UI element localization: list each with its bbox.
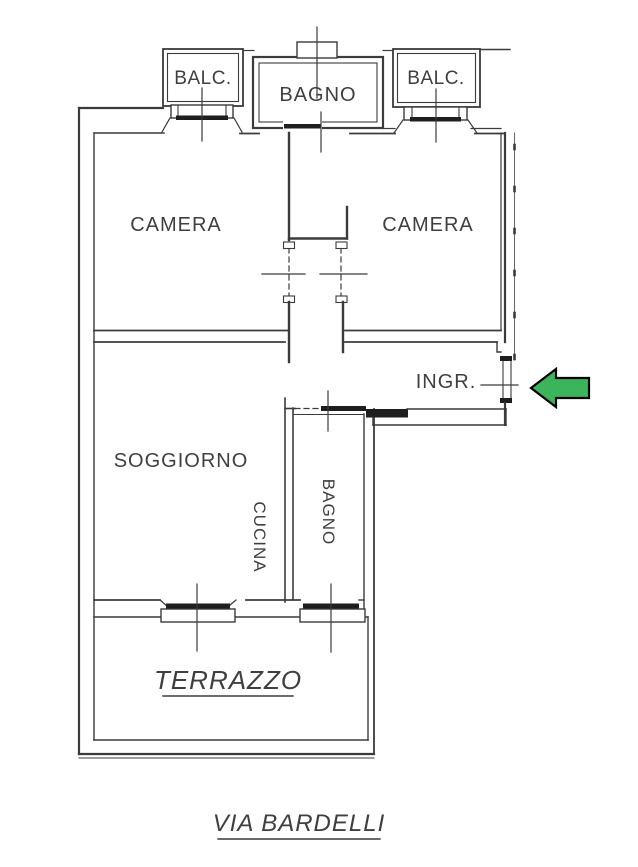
wall-fill	[366, 409, 408, 418]
label-entrance: INGR.	[416, 371, 477, 393]
floor-plan: BALC. BAGNO BALC. CAMERA CAMERA INGR. SO…	[0, 0, 638, 867]
window-frame	[161, 609, 235, 622]
window-frame	[300, 609, 365, 622]
label-balcony-left: BALC.	[174, 68, 231, 89]
label-balcony-right: BALC.	[407, 68, 464, 89]
door-sill	[284, 124, 321, 129]
french-window-right	[350, 89, 505, 142]
label-bedroom-left: CAMERA	[130, 214, 222, 236]
label-bedroom-right: CAMERA	[382, 214, 474, 236]
bedroom-walls	[94, 331, 501, 353]
central-partition	[262, 133, 367, 362]
door-jamb	[336, 296, 347, 303]
street-name: VIA BARDELLI	[213, 810, 386, 837]
hall-walls	[285, 391, 506, 431]
door-frame	[503, 361, 511, 398]
label-bathroom-top: BAGNO	[279, 84, 356, 106]
label-bathroom-lower: BAGNO	[319, 479, 338, 545]
french-window-left	[162, 88, 259, 141]
label-terrace: TERRAZZO	[154, 665, 302, 695]
terrace-window-bath	[300, 584, 365, 652]
entrance-door	[481, 356, 518, 425]
label-kitchen: CUCINA	[250, 501, 269, 572]
door-jamb	[336, 242, 347, 249]
floor-plan-drawing: BALC. BAGNO BALC. CAMERA CAMERA INGR. SO…	[0, 0, 638, 867]
door-jamb	[500, 356, 512, 361]
right-wall	[501, 133, 515, 360]
exterior-walls	[79, 108, 374, 758]
entrance-arrow	[531, 369, 589, 407]
door-jamb	[284, 242, 295, 249]
window-sill	[166, 604, 230, 609]
label-living-room: SOGGIORNO	[114, 450, 249, 472]
terrace-window-living	[160, 584, 236, 651]
wall-segment	[497, 342, 501, 352]
